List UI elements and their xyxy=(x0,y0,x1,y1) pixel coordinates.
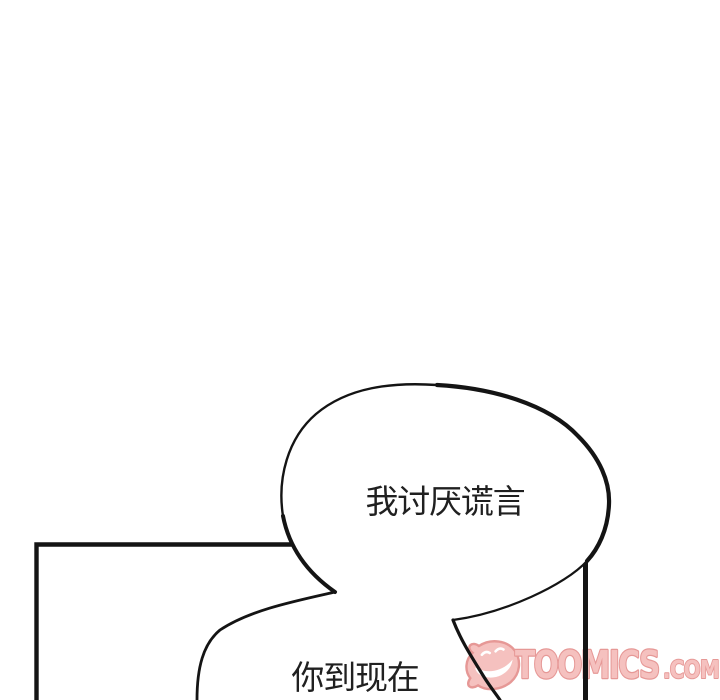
panel-border-top-left xyxy=(37,545,301,700)
toomics-watermark: TOOMICS .COM xyxy=(464,639,719,692)
watermark-tld-text: .COM xyxy=(663,656,719,685)
dialogue-main-bubble: 我讨厌谎言 xyxy=(360,481,530,523)
comic-panel-artwork: TOOMICS .COM xyxy=(0,0,720,700)
dialogue-lower-bubble: 你到现在 xyxy=(286,658,424,698)
toomics-logo-icon xyxy=(464,639,521,692)
comic-page: TOOMICS .COM 我讨厌谎言 你到现在 xyxy=(0,0,720,700)
